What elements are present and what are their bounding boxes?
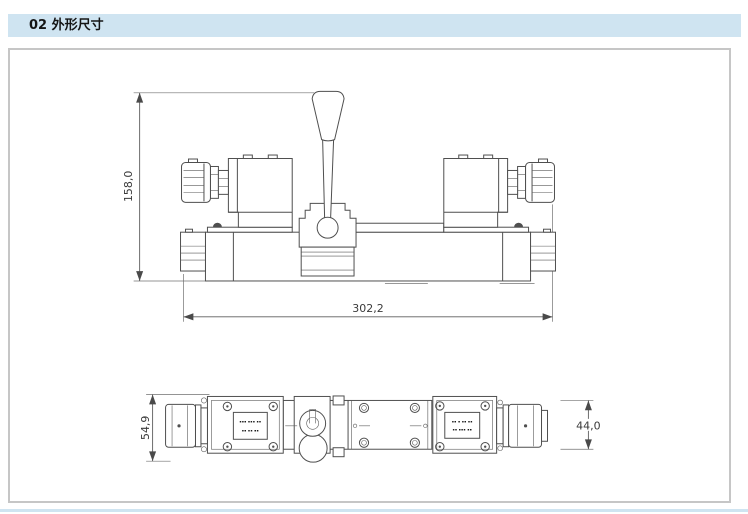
bottom-right-solenoid: ▪▪ ▪ ▪▪ ▪▪ ▪▪ ▪▪▪ ▪▪	[433, 396, 503, 453]
lever-ball-plan	[299, 434, 327, 462]
dim-label-width: 302,2	[352, 302, 383, 315]
page: 02 外形尺寸 158,0	[0, 0, 748, 514]
right-bracket	[444, 227, 529, 232]
lever-adapter	[301, 247, 354, 276]
left-coupling-ring	[210, 166, 218, 198]
next-section-strip	[0, 509, 748, 512]
lever-pivot-plan	[300, 410, 326, 436]
right-end-nut	[531, 232, 556, 271]
right-plug-connector	[526, 163, 555, 203]
front-lever	[299, 91, 356, 276]
drawing-box: 158,0 302,2	[8, 48, 731, 503]
lever-knob	[312, 91, 344, 141]
lever-pivot	[317, 217, 338, 238]
bottom-left-solenoid: ▪▪▪ ▪▪▪ ▪▪ ▪▪ ▪▪ ▪▪	[201, 396, 283, 453]
section-header-title: 02 外形尺寸	[8, 14, 741, 37]
front-left-solenoid	[182, 155, 293, 232]
nameplate-left-line2: ▪▪ ▪▪ ▪▪	[242, 428, 259, 432]
dimension-drawing: 158,0 302,2	[10, 50, 729, 501]
bottom-left-connector	[166, 404, 208, 447]
right-coupling-ring	[518, 166, 526, 198]
bottom-view: 54,9 44,0	[139, 394, 604, 462]
left-plug-connector	[182, 163, 211, 203]
left-coil-block	[228, 159, 292, 228]
right-coil-block	[444, 159, 508, 228]
bottom-right-connector	[497, 404, 548, 447]
left-end-nut	[181, 232, 206, 271]
dim-label-overall-height: 54,9	[139, 416, 152, 440]
front-right-solenoid	[444, 155, 555, 232]
dim-label-height: 158,0	[122, 171, 135, 202]
front-view: 158,0 302,2	[122, 91, 555, 321]
nameplate-right-line2: ▪▪ ▪▪▪ ▪▪	[452, 427, 472, 431]
section-header-bar: 02 外形尺寸	[8, 14, 741, 37]
nameplate-right-line1: ▪▪ ▪ ▪▪ ▪▪	[452, 419, 473, 423]
nameplate-left-line1: ▪▪▪ ▪▪▪ ▪▪	[239, 419, 261, 423]
right-bracket-screw	[514, 223, 523, 227]
nameplate-right	[445, 412, 480, 438]
left-bracket-screw	[213, 223, 222, 227]
left-bracket	[207, 227, 292, 232]
dim-label-body-height: 44,0	[576, 419, 600, 432]
bottom-dim-body: 44,0	[560, 400, 604, 449]
nameplate-left	[233, 412, 267, 439]
